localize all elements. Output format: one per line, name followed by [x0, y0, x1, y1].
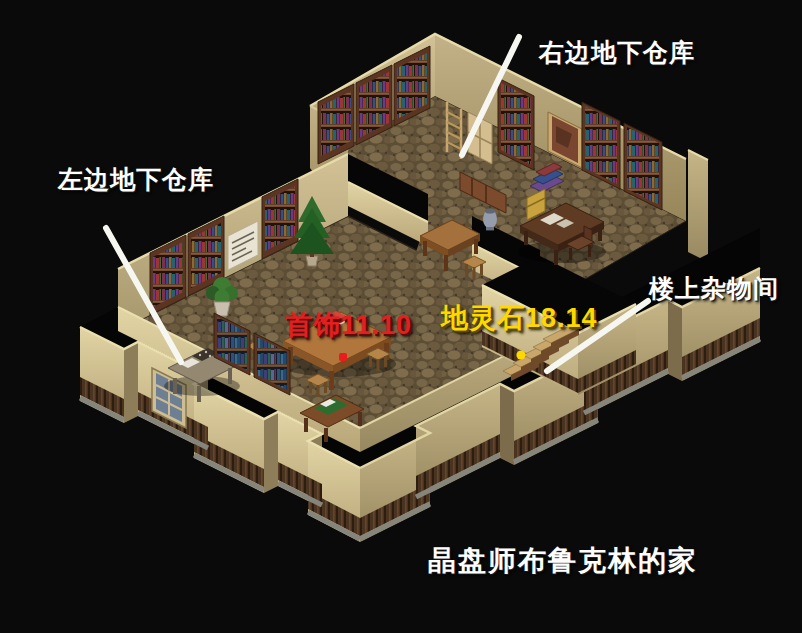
jewelry-marker[interactable] [339, 353, 347, 361]
label-right-basement: 右边地下仓库 [539, 36, 695, 69]
jog-face [124, 342, 138, 423]
spirit-stone-marker[interactable] [516, 350, 525, 359]
jog-face [500, 384, 514, 465]
jog-face [264, 412, 278, 493]
label-spirit-stone-coordinates: 地灵石18.14 [441, 300, 598, 336]
game-screenshot: 右边地下仓库 左边地下仓库 楼上杂物间 首饰11.10 地灵石18.14 晶盘师… [0, 0, 802, 633]
label-jewelry-coordinates: 首饰11.10 [285, 307, 412, 343]
label-left-basement: 左边地下仓库 [58, 163, 214, 196]
house-title: 晶盘师布鲁克林的家 [428, 542, 698, 580]
jog-face [668, 300, 682, 381]
east-wall-fragment [688, 150, 708, 262]
label-upstairs-storage: 楼上杂物间 [649, 272, 779, 305]
